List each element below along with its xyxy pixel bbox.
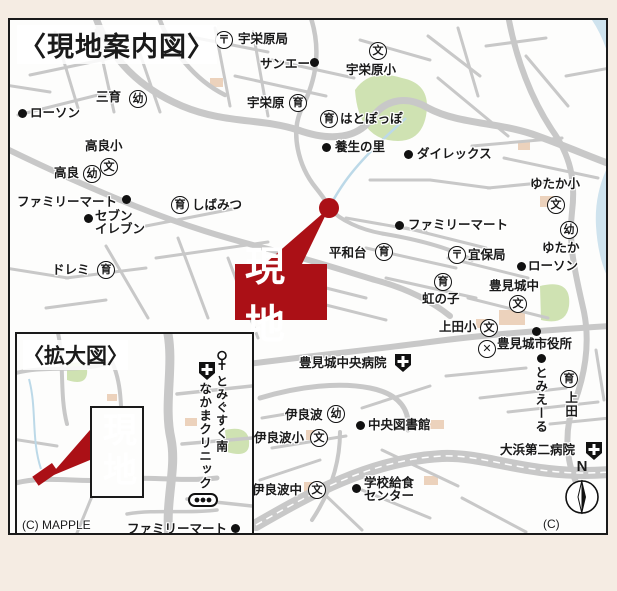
dot-icon (310, 58, 319, 67)
place-label: ファミリーマート (408, 219, 508, 232)
place-label: ローソン (528, 260, 578, 273)
place-label: 豊見城中央病院 (299, 357, 387, 370)
place-label: ダイレックス (417, 148, 492, 161)
place-label: ドレミ (52, 264, 90, 277)
place-label: 宇栄原 (247, 97, 285, 110)
dot-icon (18, 109, 27, 118)
nursery-icon: 育 (97, 261, 115, 279)
nursery-icon: 育 (320, 110, 338, 128)
place-label: とみえーる (533, 366, 546, 434)
place-label: 学校給食 センター (364, 477, 414, 503)
school-icon: 文 (509, 295, 527, 313)
place-label: 大浜第二病院 (500, 444, 575, 457)
nursery-icon: 育 (375, 243, 393, 261)
place-label: 高良小 (85, 140, 123, 153)
place-label: ゆたか (542, 242, 580, 255)
police-icon: ✕ (478, 340, 496, 358)
compass: N (558, 460, 606, 524)
dot-icon (231, 524, 240, 533)
site-box: 現地 (235, 264, 327, 320)
place-label: 宇栄原小 (346, 64, 396, 77)
signal-icon (216, 350, 228, 376)
place-label: 虹の子 (422, 293, 460, 306)
location-map-page: 〈現地案内図〉 〒宇栄原局サンエー文宇栄原小幼三育ローソン育宇栄原育はとぽっぽ養… (0, 0, 617, 591)
kindergarten-icon: 幼 (560, 221, 578, 239)
place-label: 宇栄原局 (238, 33, 288, 46)
school-icon: 文 (547, 196, 565, 214)
postal-icon: 〒 (215, 31, 233, 49)
place-label: 中央図書館 (368, 419, 431, 432)
compass-n-label: N (558, 460, 606, 474)
place-label: サンエー (260, 58, 310, 71)
inset-title: 〈拡大図〉 (23, 340, 128, 370)
place-label: 平和台 (329, 247, 367, 260)
place-label: ゆたか小 (530, 178, 580, 191)
nursery-icon: 育 (289, 94, 307, 112)
compass-rose-icon (559, 474, 605, 520)
dot-icon (537, 354, 546, 363)
place-label: とみぐすく南 (215, 375, 228, 453)
kindergarten-icon: 幼 (129, 90, 147, 108)
nursery-icon: 育 (560, 370, 578, 388)
school-icon: 文 (480, 319, 498, 337)
dot-icon (395, 221, 404, 230)
postal-icon: 〒 (448, 246, 466, 264)
monorail-icon (188, 493, 218, 512)
nursery-icon: 育 (434, 273, 452, 291)
guide-map: 〈現地案内図〉 〒宇栄原局サンエー文宇栄原小幼三育ローソン育宇栄原育はとぽっぽ養… (8, 18, 608, 535)
inset-copyright: (C) MAPPLE (22, 518, 91, 532)
place-label: セブン イレブン (95, 210, 145, 236)
school-icon: 文 (310, 429, 328, 447)
place-label: なかまクリニック (197, 382, 210, 490)
dot-icon (122, 195, 131, 204)
map-title: 〈現地案内図〉 (17, 25, 217, 64)
place-label: ファミリーマート (17, 196, 117, 209)
place-label: 高良 (54, 167, 79, 180)
school-icon: 文 (100, 158, 118, 176)
dot-icon (84, 214, 93, 223)
hospital-icon (395, 354, 411, 377)
kindergarten-icon: 幼 (327, 405, 345, 423)
place-label: 伊良波 (285, 409, 323, 422)
nursery-icon: 育 (171, 196, 189, 214)
place-label: はとぽっぽ (340, 113, 403, 126)
place-label: ファミリーマート (127, 523, 227, 535)
place-label: 上田小 (439, 321, 477, 334)
place-label: 伊良波小 (254, 432, 304, 445)
school-icon: 文 (369, 42, 387, 60)
place-label: しばみつ (192, 199, 242, 212)
dot-icon (352, 484, 361, 493)
place-label: ローソン (30, 107, 80, 120)
place-label: 宜保局 (468, 249, 506, 262)
place-label: 豊見城市役所 (497, 338, 572, 351)
place-label: 上田 (563, 391, 576, 418)
school-icon: 文 (308, 481, 326, 499)
dot-icon (404, 150, 413, 159)
dot-icon (532, 327, 541, 336)
enlarged-map-inset: 〈拡大図〉 なかまクリニックとみぐすく南ファミリーマート 現地 (C) MAPP… (15, 332, 254, 535)
dot-icon (517, 262, 526, 271)
place-label: 伊良波中 (252, 484, 302, 497)
dot-icon (356, 421, 365, 430)
map-copyright: (C) MAPPLE (543, 517, 606, 535)
place-label: 三育 (96, 91, 121, 104)
navi-bar: 我那覇 324 Navi ▶ 豊見城市我那覇 324 (0, 537, 617, 591)
inset-site-box: 現地 (90, 406, 144, 498)
place-label: 豊見城中 (489, 280, 539, 293)
place-label: 養生の里 (335, 141, 385, 154)
dot-icon (322, 143, 331, 152)
kindergarten-icon: 幼 (83, 165, 101, 183)
